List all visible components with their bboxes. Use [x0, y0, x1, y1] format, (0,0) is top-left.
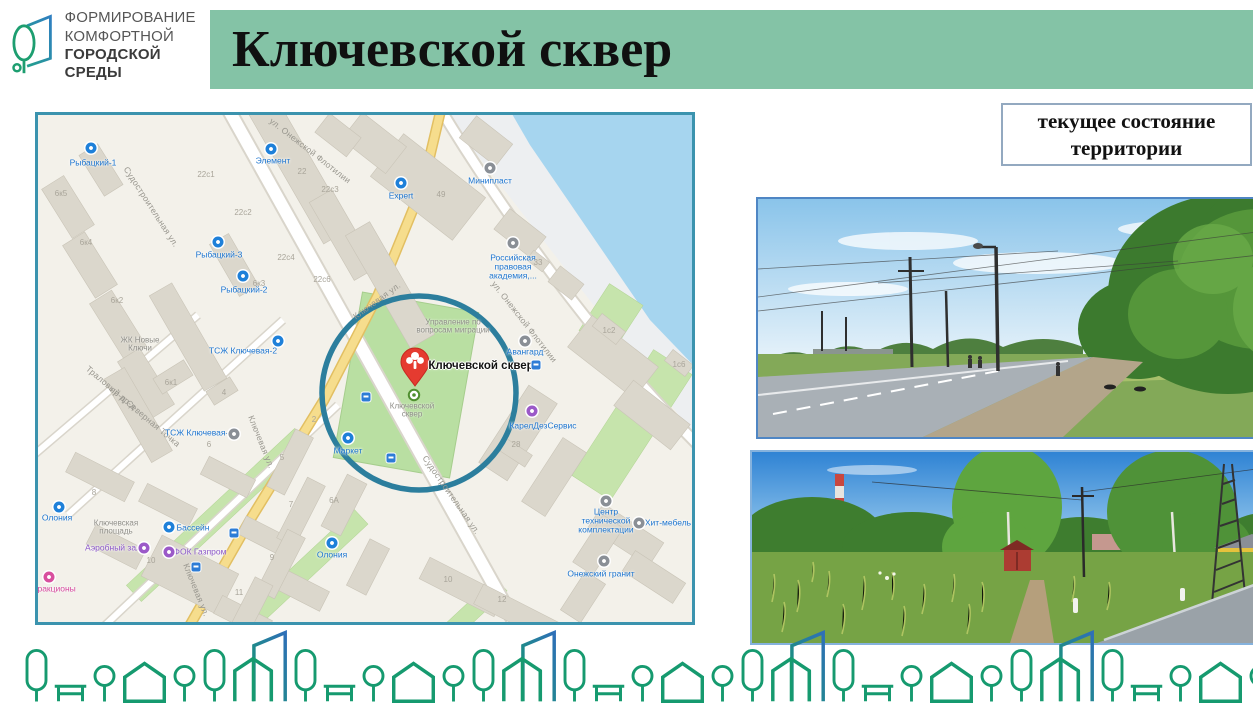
map-label: 33	[534, 259, 543, 267]
house-tower-icon	[1039, 630, 1095, 703]
map-label: 6к4	[80, 239, 92, 247]
tree-round-icon	[1168, 665, 1193, 703]
tree-tall-icon	[202, 649, 227, 703]
logo-line-3: ГОРОДСКОЙ СРЕДЫ	[65, 46, 206, 83]
tree-round-icon	[361, 665, 386, 703]
map-label: Бассейн	[177, 524, 210, 533]
tree-tall-icon	[1009, 649, 1034, 703]
map-label: Ключевской сквер	[428, 360, 533, 372]
map-label: Олония	[317, 551, 347, 560]
status-label: текущее состояние территории	[1012, 108, 1242, 161]
program-logo-text: ФОРМИРОВАНИЕ КОМФОРТНОЙ ГОРОДСКОЙ СРЕДЫ	[65, 9, 206, 82]
bench-icon	[54, 683, 87, 703]
tree-tall-icon	[562, 649, 587, 703]
map-label: 6к3	[253, 280, 265, 288]
map-label: ФОК Газпром	[174, 548, 227, 557]
map-label: Авангард	[507, 348, 544, 357]
map-label: 5	[280, 454, 284, 462]
map-label: 10	[444, 576, 453, 584]
map-labels-layer: Судостроительная ул.ул. Онежской Флотили…	[38, 115, 692, 622]
map-poi-icon	[601, 496, 612, 507]
map-poi-icon	[599, 556, 610, 567]
map-label: 6к1	[165, 379, 177, 387]
photo-current-state-2	[750, 450, 1253, 645]
status-label-box: текущее состояние территории	[1001, 103, 1252, 166]
map-poi-icon	[86, 143, 97, 154]
slide-title: Ключевской сквер	[210, 20, 672, 79]
map-label: 12	[498, 596, 507, 604]
map-poi-icon	[139, 543, 150, 554]
map-label: 49	[437, 191, 446, 199]
map-label: ТСЖ Ключевая-2	[209, 347, 277, 356]
map-label: 22с1	[197, 171, 214, 179]
map-label: Судостроительная ул.	[421, 454, 482, 536]
footer-skyline-pattern	[0, 625, 1253, 703]
map-poi-icon	[266, 144, 277, 155]
bench-icon	[1130, 683, 1163, 703]
map-transit-stop-icon	[387, 454, 396, 463]
map-transit-stop-icon	[532, 361, 541, 370]
slide-title-banner: Ключевской сквер	[210, 10, 1253, 89]
photo-current-state-1	[756, 197, 1253, 439]
map-label: 4	[222, 389, 226, 397]
map-label: Маркет	[334, 447, 363, 456]
map-poi-icon	[273, 336, 284, 347]
tree-tall-icon	[293, 649, 318, 703]
map-label: 6к2	[111, 297, 123, 305]
house-tower-icon	[501, 630, 557, 703]
map-label: 28	[512, 441, 521, 449]
map-label: 22с6	[313, 276, 330, 284]
map-label: Элемент	[256, 157, 291, 166]
logo-line-1: ФОРМИРОВАНИЕ	[65, 9, 206, 27]
map-label: Хит-мебель	[645, 519, 691, 528]
map-label: 22с2	[234, 209, 251, 217]
map-label: ЖК Новые Ключи	[112, 337, 168, 354]
map-poi-icon	[44, 572, 55, 583]
slide: ФОРМИРОВАНИЕ КОМФОРТНОЙ ГОРОДСКОЙ СРЕДЫ …	[0, 0, 1253, 711]
map-poi-icon	[327, 538, 338, 549]
tree-round-icon	[899, 665, 924, 703]
map-poi-icon	[485, 163, 496, 174]
map-label: ТСЖ Ключевая-6	[165, 429, 233, 438]
house-icon	[122, 660, 167, 703]
map-poi-icon	[343, 433, 354, 444]
map-label: Ключевая ул.	[246, 414, 275, 470]
logo-line-2: КОМФОРТНОЙ	[65, 28, 206, 46]
map-label: Управление по вопросам миграции	[413, 319, 493, 336]
map-poi-icon	[213, 237, 224, 248]
map-label: Рыбацкий-3	[196, 251, 243, 260]
tree-tall-icon	[740, 649, 765, 703]
map-poi-icon	[634, 518, 645, 529]
map-label: КарелДезСервис	[509, 422, 576, 431]
tree-round-icon	[1248, 665, 1253, 703]
map-label: 9	[270, 554, 274, 562]
map-label: Ключевая ул.	[352, 281, 403, 321]
map-poi-icon	[527, 406, 538, 417]
map-transit-stop-icon	[192, 563, 201, 572]
tree-round-icon	[441, 665, 466, 703]
tree-tall-icon	[831, 649, 856, 703]
map-label: 6А	[329, 497, 339, 505]
map-poi-icon	[238, 271, 249, 282]
map-transit-stop-icon	[362, 393, 371, 402]
tree-tall-icon	[1100, 649, 1125, 703]
map-label: 10	[147, 557, 156, 565]
map-label: Онежский гранит	[567, 570, 634, 579]
map-label: пр-д Северная Точка	[108, 385, 181, 449]
map-label: Минипласт	[468, 177, 512, 186]
map-label: 22с4	[277, 254, 294, 262]
map-poi-icon	[520, 336, 531, 347]
tree-round-icon	[710, 665, 735, 703]
house-tower-icon	[232, 630, 288, 703]
map-label: 1с2	[603, 327, 616, 335]
map-poi-icon	[164, 547, 175, 558]
house-icon	[391, 660, 436, 703]
map-poi-icon	[508, 238, 519, 249]
map-label: 8	[92, 489, 96, 497]
map-transit-stop-icon	[230, 529, 239, 538]
tree-round-icon	[92, 665, 117, 703]
map-label: ул. Онежской Флотилии	[268, 117, 353, 186]
bench-icon	[861, 683, 894, 703]
tree-round-icon	[979, 665, 1004, 703]
map-label: Expert	[389, 192, 414, 201]
house-icon	[929, 660, 974, 703]
map-label: 11	[235, 589, 243, 597]
map-label: Аттракционы	[35, 585, 76, 594]
bench-icon	[592, 683, 625, 703]
tree-round-icon	[630, 665, 655, 703]
map-label: Ключевская площадь	[81, 520, 151, 537]
map-poi-icon	[164, 522, 175, 533]
house-icon	[1198, 660, 1243, 703]
map-label: 1с6	[673, 361, 686, 369]
map-label: Олония	[42, 514, 72, 523]
bench-icon	[323, 683, 356, 703]
house-tower-icon	[770, 630, 826, 703]
map-label: 2	[312, 416, 316, 424]
map-label: Ключевской сквер	[388, 403, 436, 420]
map-label: Аэробный зал	[85, 544, 141, 553]
map-label: 7	[289, 501, 293, 509]
tree-round-icon	[172, 665, 197, 703]
map-poi-icon	[396, 178, 407, 189]
map-label: Центр технической комплектации	[570, 508, 642, 535]
map-label: 6к5	[55, 190, 67, 198]
map-label: 22с3	[321, 186, 338, 194]
tree-tall-icon	[471, 649, 496, 703]
program-logo: ФОРМИРОВАНИЕ КОМФОРТНОЙ ГОРОДСКОЙ СРЕДЫ	[10, 5, 206, 87]
map-label: Рыбацкий-1	[70, 159, 117, 168]
program-logo-icon	[10, 5, 57, 87]
map-label: Судостроительная ул.	[122, 165, 180, 248]
map-poi-icon	[229, 429, 240, 440]
map-label: 22	[298, 168, 307, 176]
map-label: 6	[207, 441, 211, 449]
location-map: Судостроительная ул.ул. Онежской Флотили…	[35, 112, 695, 625]
tree-tall-icon	[24, 649, 49, 703]
map-poi-icon	[54, 502, 65, 513]
house-icon	[660, 660, 705, 703]
